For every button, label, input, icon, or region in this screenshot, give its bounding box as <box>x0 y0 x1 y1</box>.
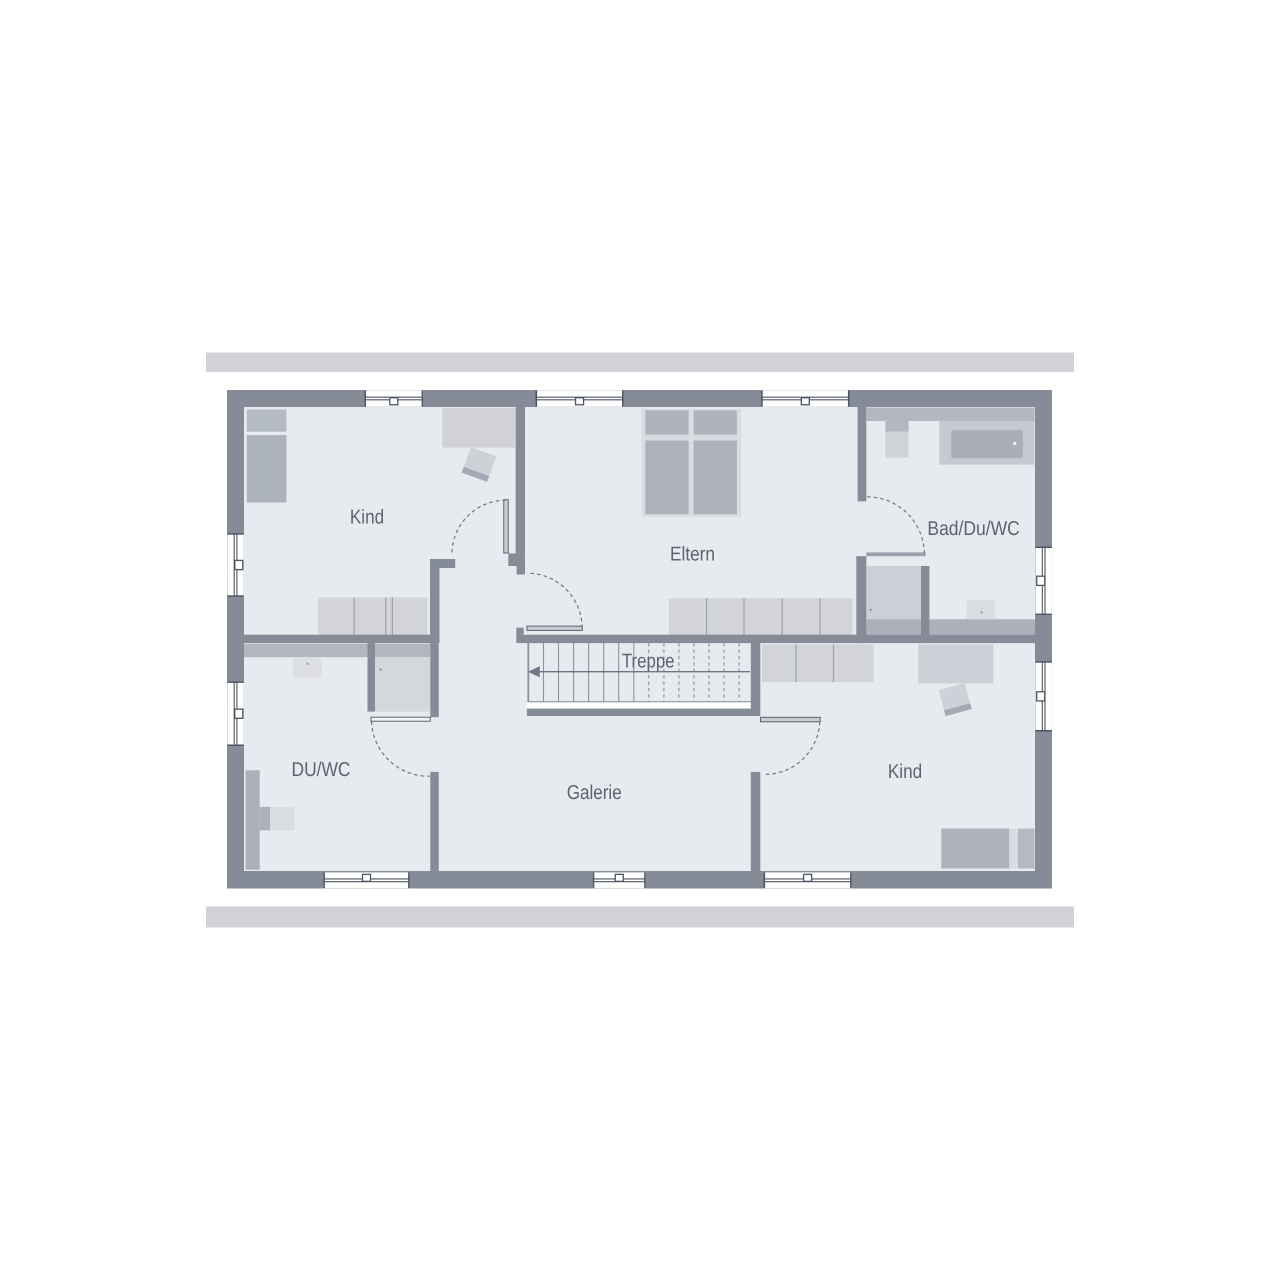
svg-text:Treppe: Treppe <box>622 651 675 673</box>
svg-text:Galerie: Galerie <box>567 782 622 804</box>
svg-text:Kind: Kind <box>350 507 384 529</box>
svg-text:Eltern: Eltern <box>670 544 715 566</box>
svg-text:Bad/Du/WC: Bad/Du/WC <box>927 518 1019 540</box>
svg-text:DU/WC: DU/WC <box>292 759 351 781</box>
svg-text:Kind: Kind <box>888 761 922 783</box>
